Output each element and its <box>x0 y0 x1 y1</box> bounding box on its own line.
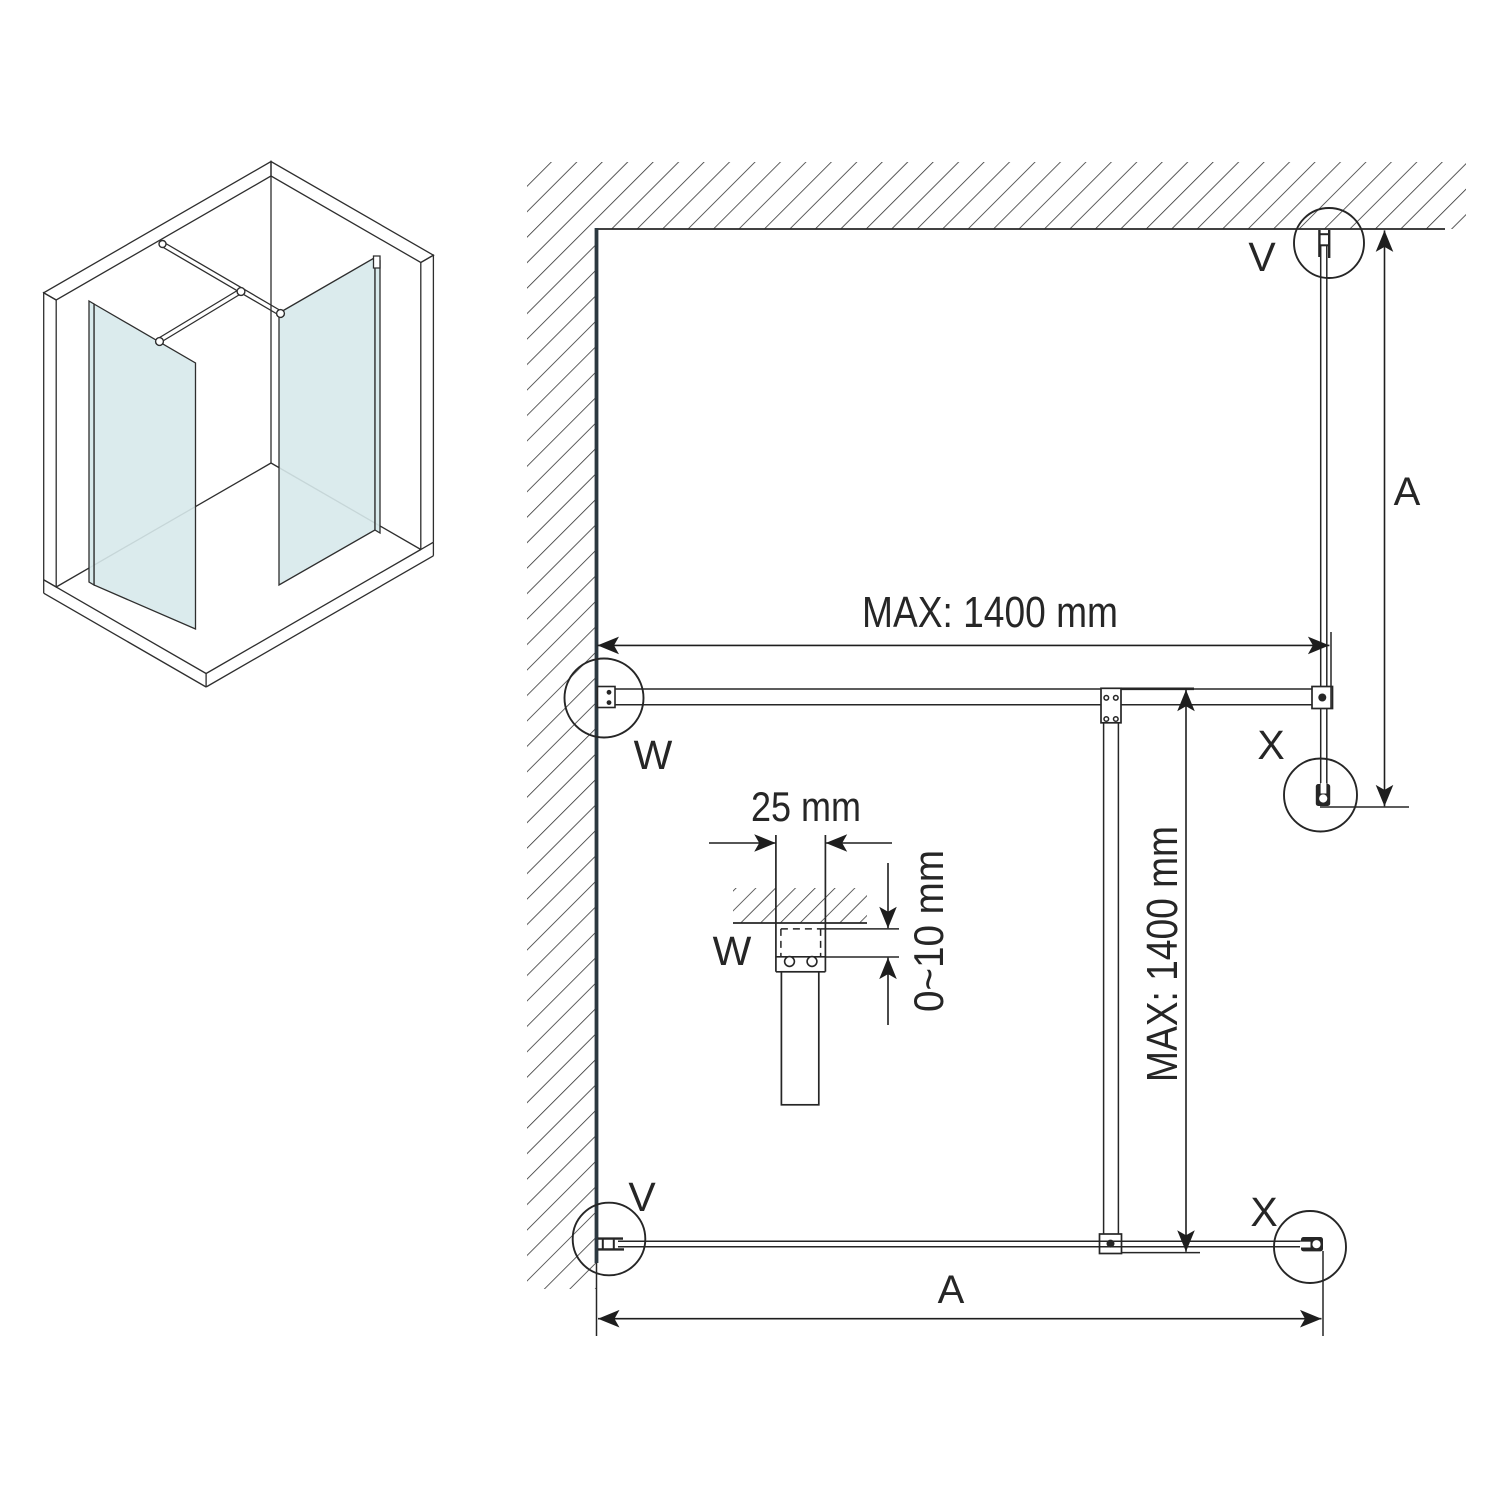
svg-text:MAX: 1400 mm: MAX: 1400 mm <box>862 588 1118 637</box>
svg-text:X: X <box>1257 722 1284 768</box>
svg-text:W: W <box>634 732 673 778</box>
svg-text:25 mm: 25 mm <box>751 783 861 830</box>
svg-text:X: X <box>1250 1189 1277 1235</box>
svg-text:0~10 mm: 0~10 mm <box>905 850 952 1012</box>
svg-text:V: V <box>1248 234 1276 280</box>
svg-text:V: V <box>628 1174 656 1220</box>
svg-text:W: W <box>713 928 752 974</box>
svg-text:A: A <box>1394 470 1421 514</box>
svg-text:MAX: 1400 mm: MAX: 1400 mm <box>1138 826 1187 1082</box>
svg-text:A: A <box>938 1268 965 1312</box>
